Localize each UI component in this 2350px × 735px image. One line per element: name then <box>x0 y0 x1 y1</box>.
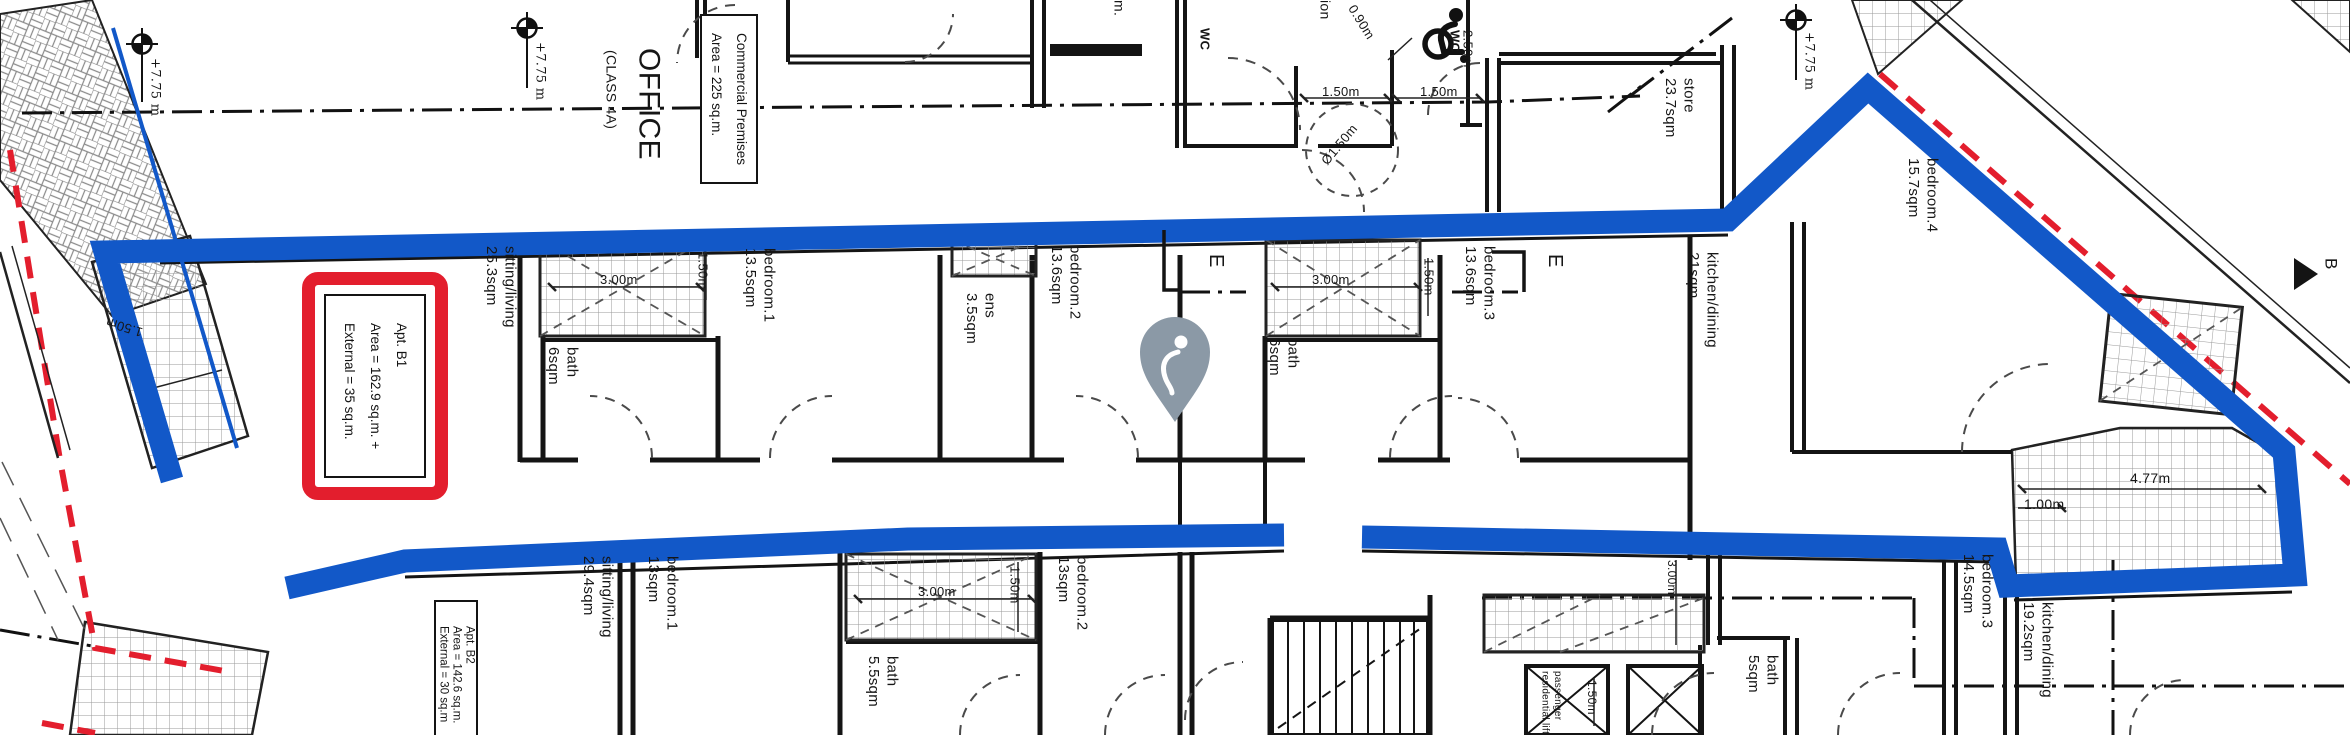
floor-plan-canvas: Apt. B1 Area = 162.9 sq.m. + External = … <box>0 0 2350 735</box>
section-marker-triangle <box>2294 258 2318 290</box>
shaft-windows <box>540 240 2242 652</box>
commercial-premises-box: Commercial Premises Area = 225 sq.m. <box>700 14 758 184</box>
stair <box>1272 620 1428 735</box>
commercial-premises-text: Commercial Premises Area = 225 sq.m. <box>702 16 756 182</box>
apartment-b2-area-box: Apt. B2 Area = 142.6 sq.m. External = 30… <box>434 600 478 735</box>
location-pin-icon[interactable] <box>1140 317 1210 422</box>
apartment-b1-area-frame: Apt. B1 Area = 162.9 sq.m. + External = … <box>324 294 426 478</box>
apartment-b1-area-text: Apt. B1 Area = 162.9 sq.m. + External = … <box>326 296 424 476</box>
apartment-b2-area-text: Apt. B2 Area = 142.6 sq.m. External = 30… <box>436 602 476 735</box>
solid-wall-segment <box>1050 44 1142 56</box>
wheelchair-icon <box>1425 8 1468 63</box>
lift-shafts <box>1526 666 1702 735</box>
apartment-b1-area-box: Apt. B1 Area = 162.9 sq.m. + External = … <box>302 272 448 500</box>
